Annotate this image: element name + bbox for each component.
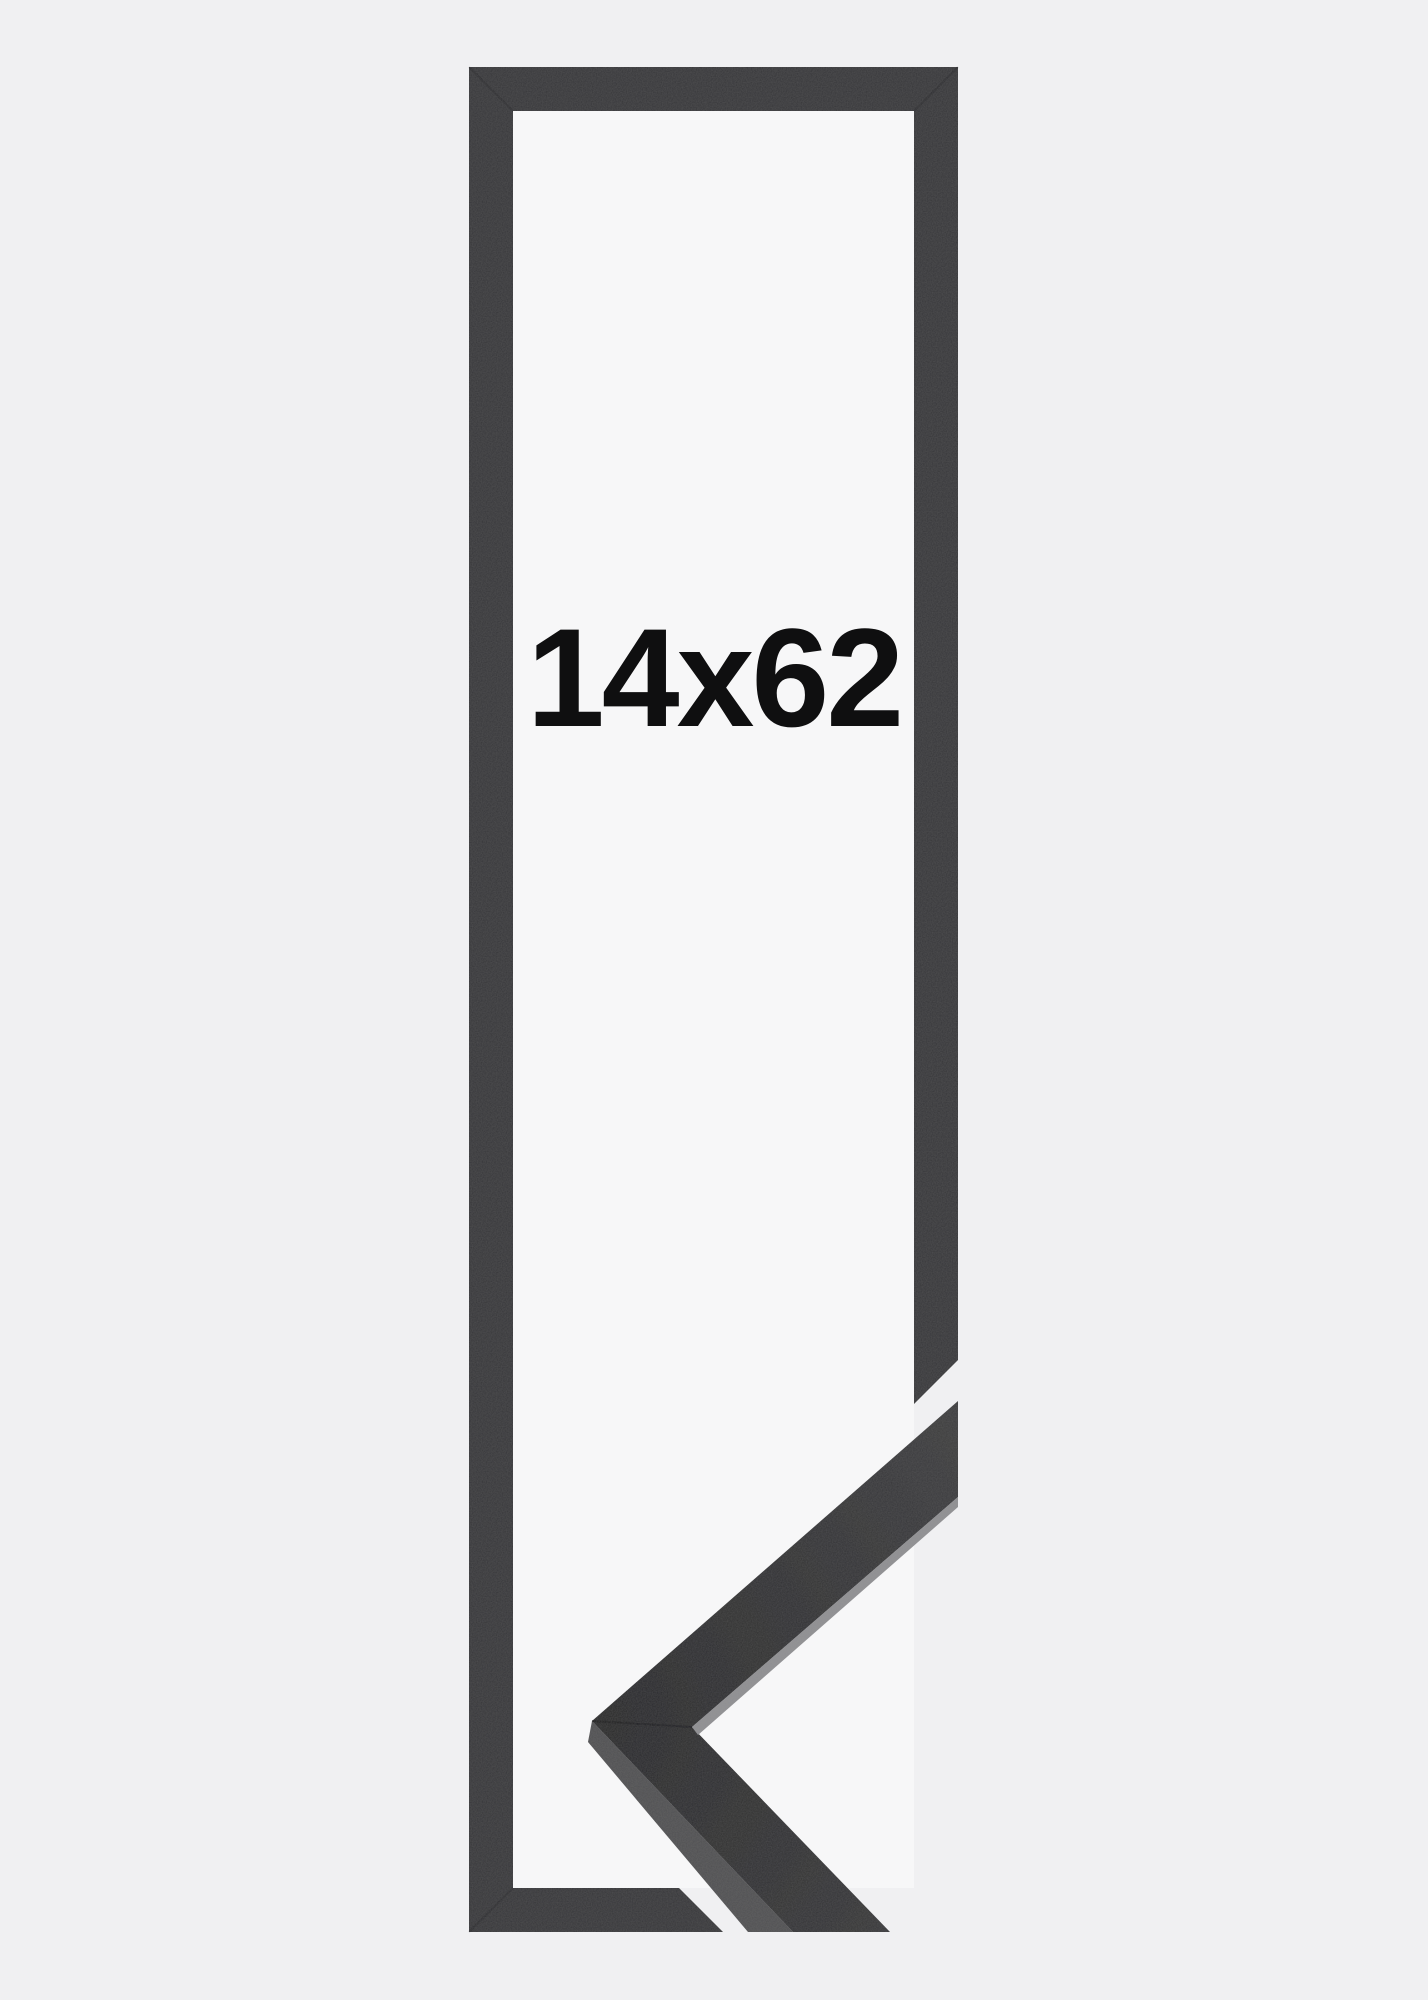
- frame-outline-left-bar: [469, 67, 513, 1932]
- frame-illustration: 14x62: [0, 0, 1428, 2000]
- frame-outline-top-bar: [469, 67, 958, 111]
- frame-outline-right-bar: [914, 67, 958, 1404]
- product-image: 14x62: [0, 0, 1428, 2000]
- size-label: 14x62: [527, 599, 901, 756]
